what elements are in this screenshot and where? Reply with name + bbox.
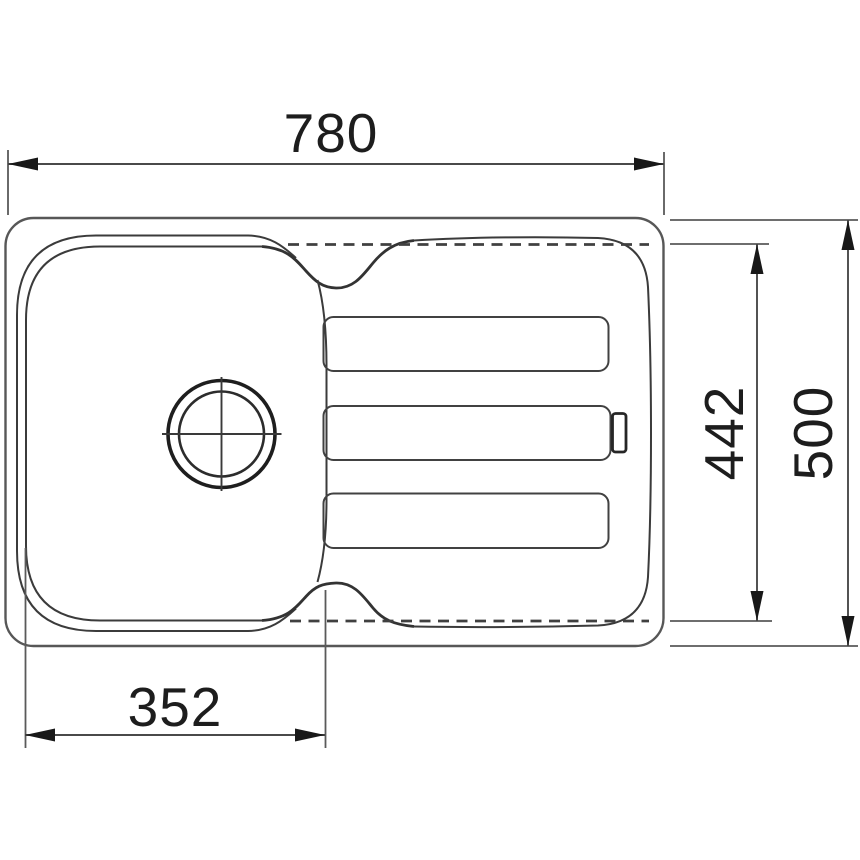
drain-icon: [162, 377, 282, 491]
drainer-rib-3: [324, 494, 609, 549]
arrowhead-left-icon: [8, 158, 38, 171]
overflow-tab: [613, 414, 627, 453]
arrowhead-down-icon: [842, 616, 855, 646]
dimension-label-780: 780: [284, 102, 379, 164]
sink-technical-drawing: 780 442 500 352: [0, 0, 860, 860]
drainer-rib-2: [324, 406, 611, 460]
dimension-label-352: 352: [128, 676, 223, 738]
sink-outline-group: [6, 218, 664, 646]
dimension-label-500: 500: [782, 386, 844, 481]
dimension-label-442: 442: [693, 386, 755, 481]
arrowhead-down-icon: [751, 591, 764, 621]
bowl-right-wall: [318, 280, 327, 582]
dimension-bowl-width: 352: [25, 548, 326, 748]
arrowhead-left-icon: [25, 729, 55, 742]
drainer-rib-1: [324, 317, 609, 371]
arrowhead-up-icon: [842, 220, 855, 250]
arrowhead-up-icon: [751, 244, 764, 274]
arrowhead-right-icon: [295, 729, 325, 742]
drainer-contour: [414, 237, 651, 627]
drawing-svg: 780 442 500 352: [0, 0, 860, 860]
dimension-inner-depth: 442: [670, 244, 772, 621]
dimension-overall-width: 780: [8, 102, 664, 215]
arrowhead-right-icon: [634, 158, 664, 171]
